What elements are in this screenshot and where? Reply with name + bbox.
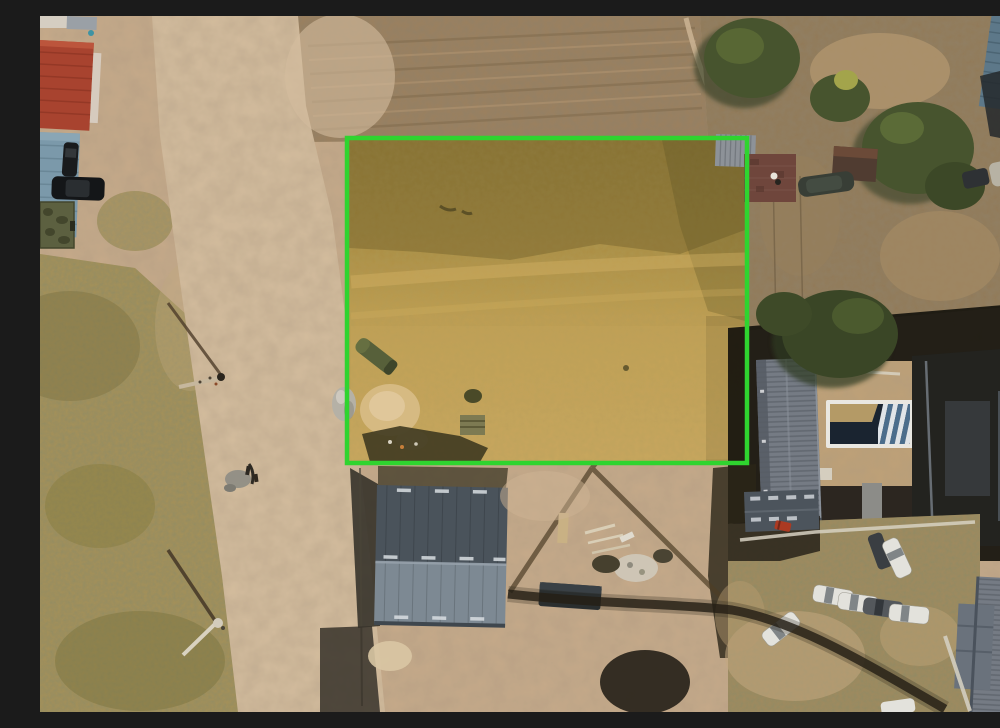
gray-roof-sliver bbox=[67, 16, 97, 30]
black-car-vertical bbox=[62, 142, 79, 177]
plot-pallet bbox=[460, 415, 485, 435]
road-top-clearing bbox=[285, 16, 395, 138]
white-wall bbox=[40, 16, 70, 28]
light-sand-patch bbox=[368, 641, 412, 671]
teal-dot bbox=[88, 30, 94, 36]
highlighted-plot bbox=[349, 140, 745, 462]
dark-soil-patch bbox=[600, 650, 690, 712]
white-dome-tank bbox=[332, 387, 356, 421]
warehouse-building bbox=[374, 485, 508, 628]
person-dark bbox=[775, 179, 781, 185]
person-white bbox=[771, 173, 778, 180]
aerial-photo bbox=[40, 16, 1000, 712]
warehouse-shadow-top bbox=[378, 466, 508, 488]
red-tile-roof bbox=[40, 40, 102, 131]
camo-trailer bbox=[40, 202, 75, 248]
bottom-left-dark-corner bbox=[320, 626, 380, 712]
aerial-photo-frame bbox=[40, 16, 1000, 712]
brick-shed bbox=[744, 154, 796, 202]
black-suv bbox=[51, 176, 105, 201]
light-dirt bbox=[500, 471, 590, 521]
